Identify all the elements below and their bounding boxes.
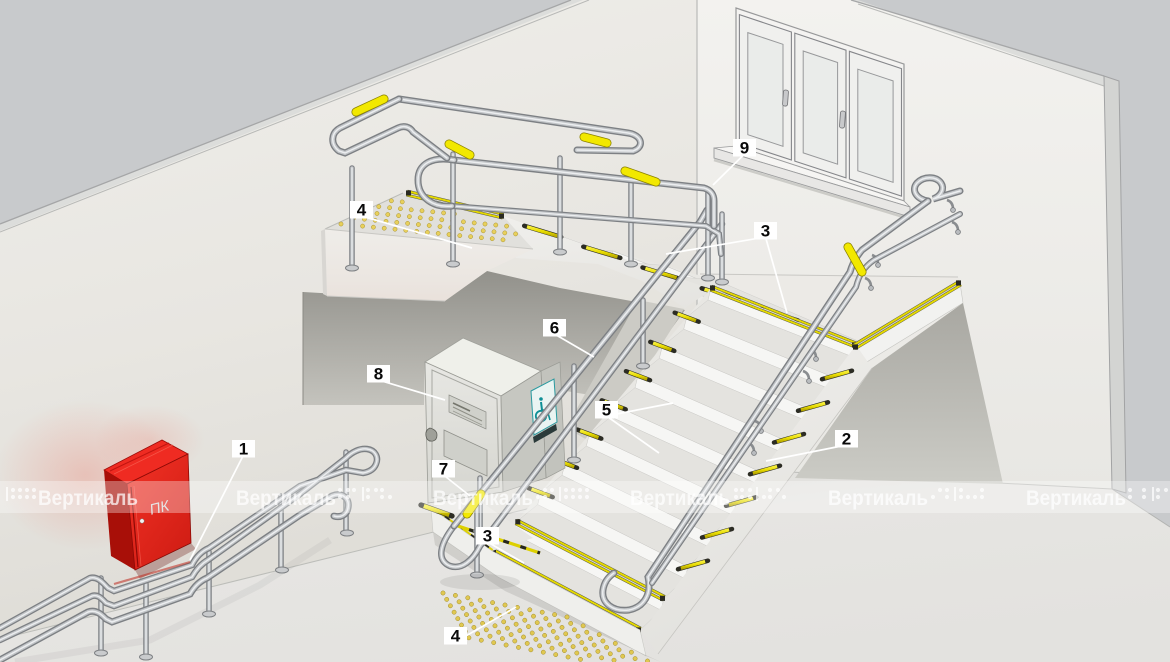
svg-text:2: 2 [842, 430, 851, 449]
svg-text:8: 8 [374, 365, 383, 384]
svg-text:5: 5 [602, 401, 611, 420]
svg-text:Вертикаль: Вертикаль [38, 487, 138, 510]
svg-text:Вертикаль: Вертикаль [630, 487, 730, 510]
svg-text:4: 4 [451, 627, 461, 646]
svg-text:3: 3 [483, 527, 492, 546]
svg-text:1: 1 [239, 440, 248, 459]
svg-text:Вертикаль: Вертикаль [433, 487, 533, 510]
svg-text:4: 4 [357, 201, 367, 220]
svg-text:Вертикаль: Вертикаль [236, 487, 336, 510]
svg-text:7: 7 [439, 460, 448, 479]
svg-text:Вертикаль: Вертикаль [1026, 487, 1126, 510]
svg-text:9: 9 [740, 139, 749, 158]
svg-text:3: 3 [761, 222, 770, 241]
svg-text:Вертикаль: Вертикаль [828, 487, 928, 510]
svg-text:6: 6 [550, 319, 559, 338]
